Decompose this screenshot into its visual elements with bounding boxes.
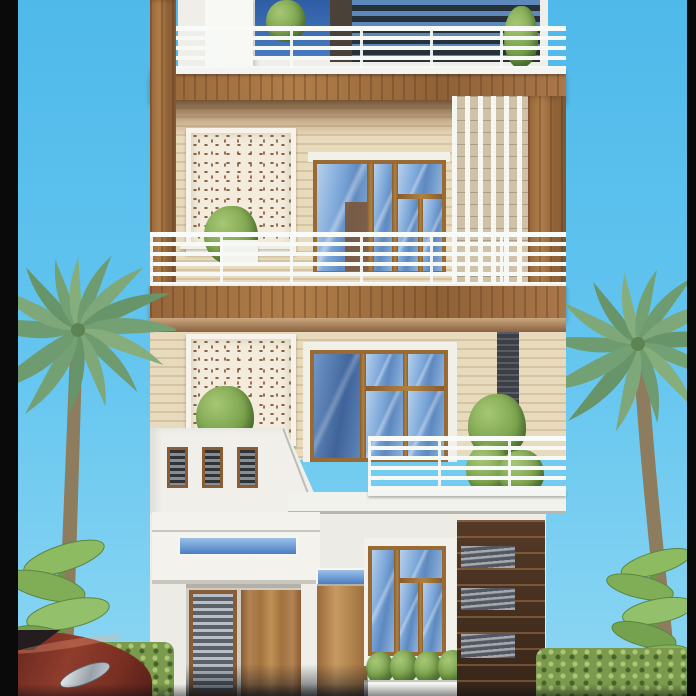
window-pane <box>423 583 442 652</box>
parapet-vent-window <box>237 447 258 488</box>
floor-band-soffit <box>150 318 566 332</box>
window-pane <box>372 550 394 652</box>
ground-floor-window <box>368 546 446 656</box>
window-pane <box>400 550 442 578</box>
roof-terrace-railing <box>150 26 566 74</box>
second-floor-railing <box>150 232 566 290</box>
window-pane <box>366 354 403 386</box>
floor-band-wood <box>150 286 566 320</box>
window-pane <box>400 583 418 652</box>
canopy-transom-window <box>178 536 298 556</box>
window-pane <box>398 164 442 194</box>
stone-accent-patch <box>461 634 515 658</box>
architectural-render <box>0 0 696 696</box>
stone-accent-patch <box>461 546 515 568</box>
parapet-vent-window <box>202 447 223 488</box>
canopy-lip-line <box>152 530 320 532</box>
stone-accent-patch <box>461 588 515 610</box>
letterbox-bar-right <box>687 0 696 696</box>
window-pane <box>408 354 444 386</box>
terrace-railing <box>368 436 566 496</box>
letterbox-bar-left <box>0 0 18 696</box>
window-pane <box>314 354 360 458</box>
bottom-vignette <box>0 684 696 696</box>
